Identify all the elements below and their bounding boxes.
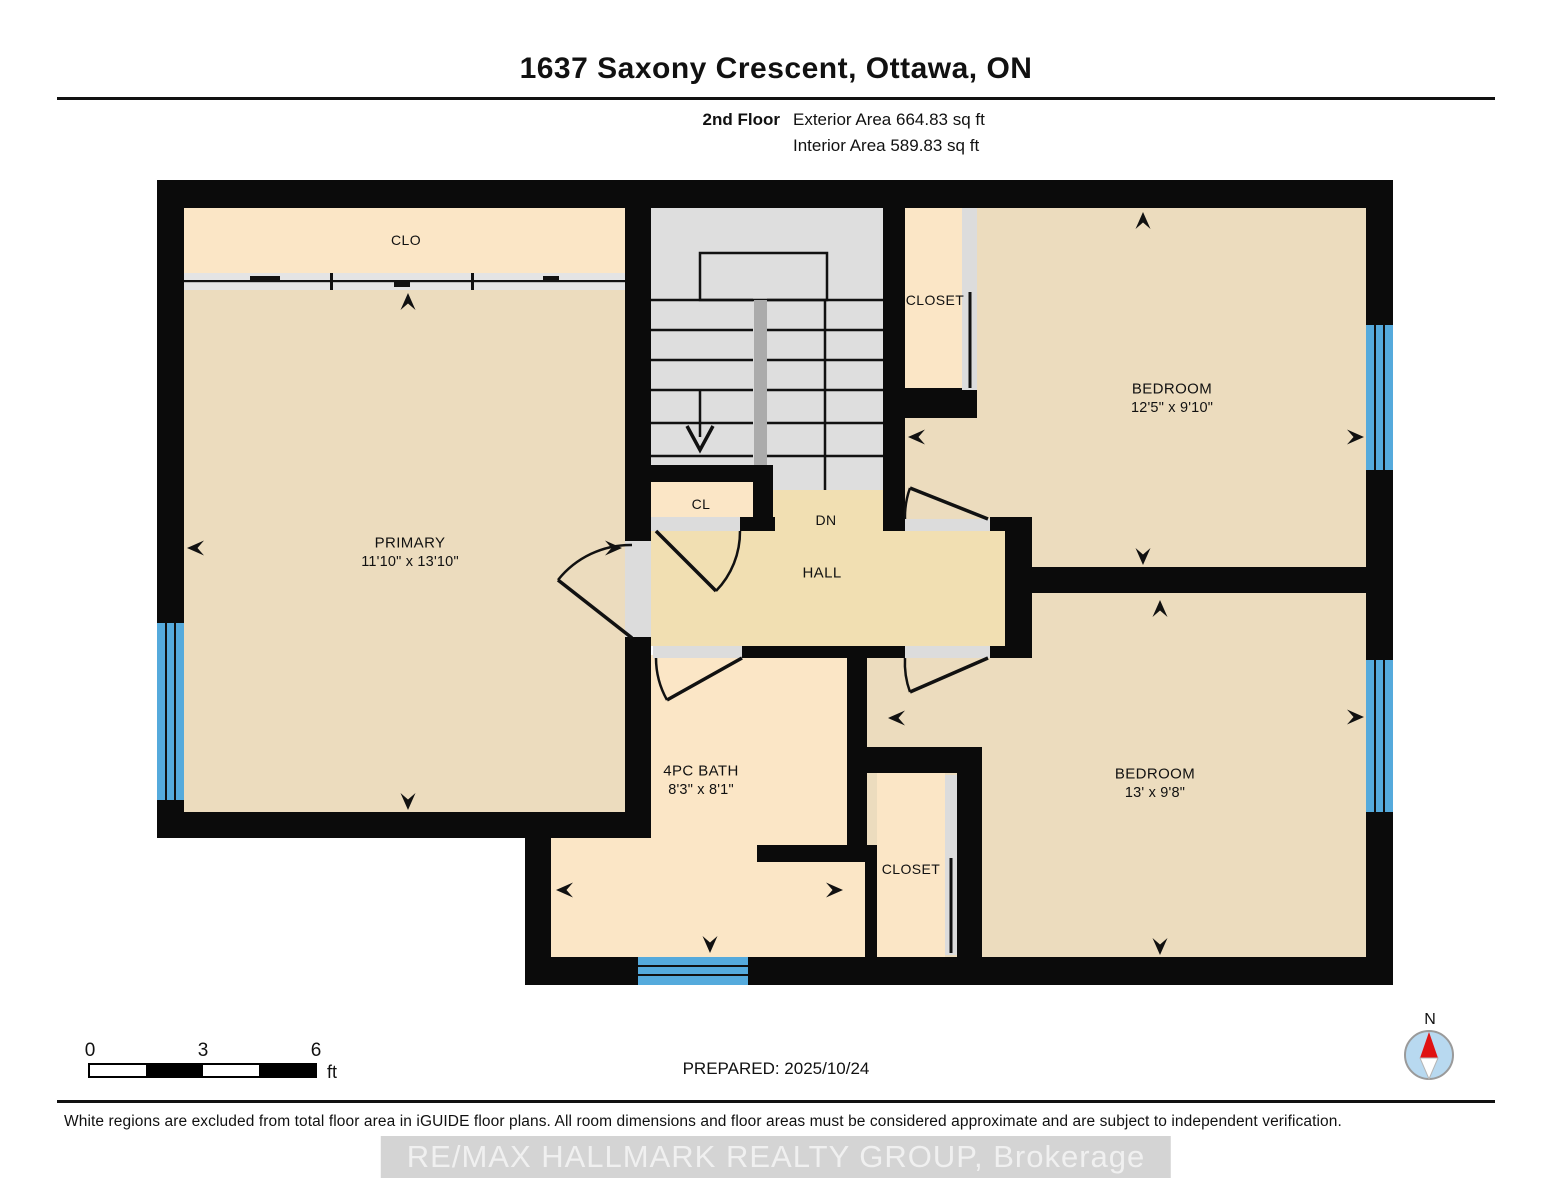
bath-floor-ext [551,838,651,957]
compass-north-label: N [1424,1011,1436,1029]
bath-door-threshold [653,646,742,658]
primary-door-threshold [625,541,651,637]
floor-plan-canvas [0,0,1552,1200]
footer-divider-line [57,1100,1495,1103]
hall-floor [651,531,1005,646]
stair-divider [754,300,767,465]
bedroom-top-door-threshold [905,519,990,531]
window-bedroom-bottom-icon [1366,652,1393,820]
window-bath-bottom-icon [630,957,756,985]
clo-label: CLO [391,232,421,248]
cl-door-threshold [651,517,740,531]
bedroom-bottom-door-threshold [905,646,990,658]
bath-dims: 8'3" x 8'1" [668,782,734,798]
window-bedroom-top-icon [1366,317,1393,478]
bath-label: 4PC BATH [663,763,738,780]
primary-dims: 11'10" x 13'10" [361,554,459,570]
stairs-dn-label: DN [815,512,836,528]
bath-floor-nook [847,862,865,957]
floor-plan-page: 1637 Saxony Crescent, Ottawa, ON 2nd Flo… [0,0,1552,1200]
bedroom-top-dims: 12'5" x 9'10" [1131,400,1213,416]
bedroom-top-label: BEDROOM [1132,381,1212,398]
window-primary-left-icon [157,615,184,808]
primary-label: PRIMARY [375,535,446,552]
prepared-date: PREPARED: 2025/10/24 [0,1059,1552,1079]
hall-label: HALL [802,565,841,582]
cl-label: CL [692,496,711,512]
closet-top-label: CLOSET [906,292,964,308]
brokerage-watermark: RE/MAX HALLMARK REALTY GROUP, Brokerage [381,1136,1171,1178]
disclaimer-text: White regions are excluded from total fl… [64,1113,1342,1131]
bedroom-bottom-label: BEDROOM [1115,766,1195,783]
bath-floor-main [651,655,847,957]
bedroom-bottom-dims: 13' x 9'8" [1125,785,1185,801]
closet-bottom-label: CLOSET [882,861,940,877]
